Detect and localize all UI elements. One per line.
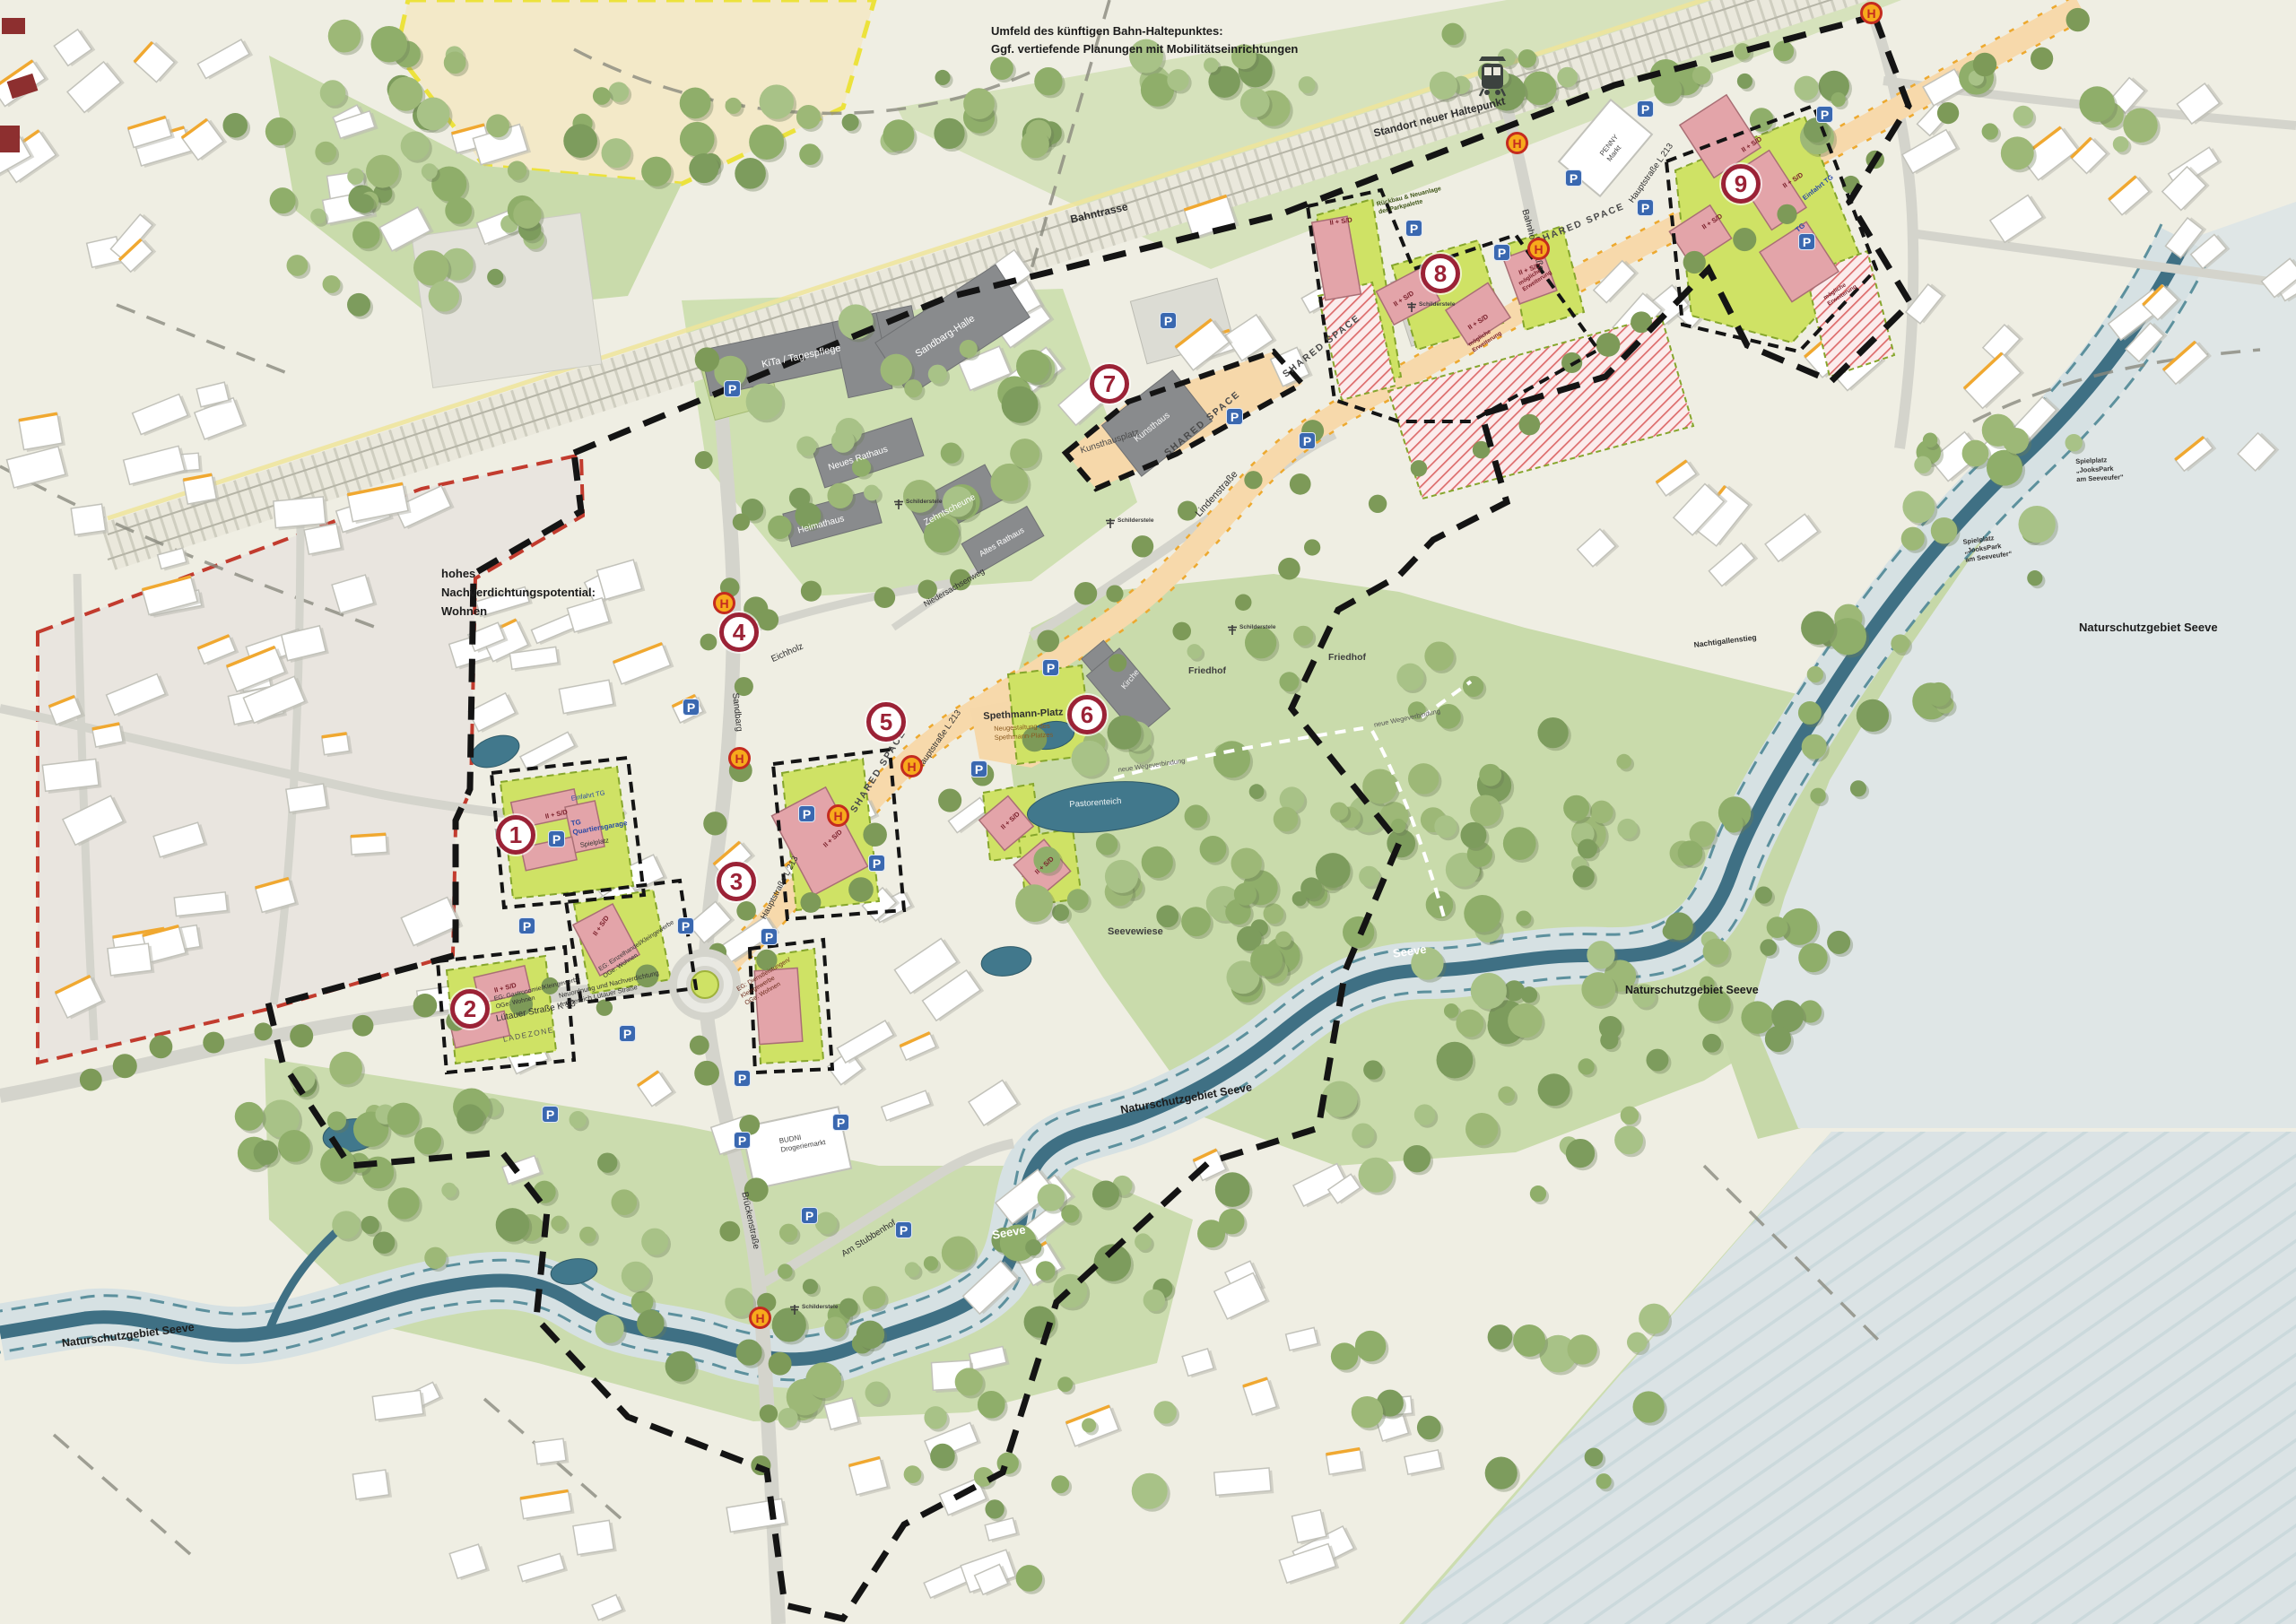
luetauer-strasse: Lütauer Straße K 53 [495, 998, 577, 1025]
storey-label: II + S/D [1033, 855, 1056, 876]
spethmann-sub: Neugestaltung des Spethmann-Platzes [994, 722, 1053, 743]
parking-icon[interactable]: P [798, 805, 815, 822]
kunsthaus: Kunsthaus [1132, 410, 1172, 445]
kita-tagespflege: KiTa / Tagespflege [761, 342, 842, 371]
wegeverbindung-1: neue Wegeverbindung [1118, 757, 1186, 775]
storey-label: II + S/D [1781, 170, 1805, 190]
parking-icon[interactable]: P [1637, 100, 1654, 117]
parking-icon[interactable]: P [1160, 312, 1177, 329]
bus-stop-icon[interactable]: H [900, 755, 923, 777]
storey-label: II + S/D [493, 981, 517, 995]
am-stubbenhof: Am Stubbenhof [839, 1217, 898, 1260]
budni: BUDNI Drogeriemarkt [778, 1129, 827, 1155]
jookspark-1: Spielplatz „JooksPark am Seeveufer“ [1962, 532, 2013, 564]
signpost-icon: Schilderstele [1227, 624, 1275, 636]
parking-icon[interactable]: P [761, 928, 778, 945]
parking-icon[interactable]: P [683, 699, 700, 716]
parking-icon[interactable]: P [1816, 106, 1833, 123]
parking-icon[interactable]: P [724, 380, 741, 397]
moegliche-erweiterung-3: mögliche Erweiterung [1822, 278, 1859, 309]
niedersachsenweg: Niedersachsenweg [922, 567, 987, 610]
einfahrt-tg-1: Einfahrt TG [570, 788, 605, 803]
storey-label: II + S/D [1466, 312, 1490, 332]
storey-label: II + S/D [591, 914, 611, 937]
parking-icon[interactable]: P [677, 917, 694, 934]
shared-space-3: SHARED SPACE [1534, 201, 1627, 248]
eg-dienstleistungen: EG: Dienstleistungen/ Kleingewerbe OGe: … [735, 956, 800, 1007]
shared-space-1: SHARED SPACE [1281, 312, 1363, 380]
parking-icon[interactable]: P [1798, 233, 1815, 250]
parking-icon[interactable]: P [801, 1207, 818, 1224]
site-marker-8[interactable]: 8 [1421, 254, 1460, 293]
nsg-seeve-4: Naturschutzgebiet Seeve [1625, 983, 1759, 997]
moegliche-erweiterung-1: mögliche Erweiterung [1518, 264, 1554, 295]
parking-icon[interactable]: P [542, 1106, 559, 1123]
masterplan-map: Umfeld des künftigen Bahn-Haltepunktes: … [0, 0, 2296, 1624]
eg-gastronomie: EG: Gastronomie/Kleingewerbe OGe: Wohnen [493, 976, 583, 1012]
site-marker-9[interactable]: 9 [1721, 164, 1761, 204]
seevewiese: Seevewiese [1108, 925, 1163, 938]
seeve-1: Seeve [991, 1222, 1027, 1243]
pastorenteich: Pastorenteich [1069, 796, 1122, 811]
nsg-seeve-3: Naturschutzgebiet Seeve [2079, 621, 2218, 636]
bahn-haltepunkt-note: Umfeld des künftigen Bahn-Haltepunktes: … [991, 22, 1298, 58]
parking-icon[interactable]: P [1405, 220, 1422, 237]
sandbarg: Sandbarg [729, 692, 744, 732]
hauptstrasse-1: Hauptstraße L 213 [759, 855, 802, 922]
nachtigallenstieg: Nachtigallenstieg [1693, 632, 1757, 650]
hauptstrasse-3: Hauptstraße L 213 [1627, 142, 1676, 205]
parking-icon[interactable]: P [895, 1221, 912, 1238]
signpost-icon: Schilderstele [1406, 301, 1455, 313]
signpost-icon: Schilderstele [1105, 517, 1153, 529]
parking-icon[interactable]: P [832, 1114, 849, 1131]
bus-stop-icon[interactable]: H [749, 1307, 771, 1329]
spethmann-platz: Spethmann-Platz [983, 706, 1064, 723]
parking-icon[interactable]: P [619, 1025, 636, 1042]
wegeverbindung-2: neue Wegeverbindung [1373, 707, 1441, 729]
standort-neuer-haltepunkt: Standort neuer Haltepunkt [1372, 95, 1507, 142]
neues-rathaus: Neues Rathaus [827, 444, 890, 474]
signpost-icon: Schilderstele [789, 1304, 838, 1316]
storey-label: II + S/D [999, 810, 1022, 831]
moegliche-erweiterung-2: mögliche Erweiterung [1467, 325, 1504, 356]
storey-label: II + S/D [1740, 135, 1763, 154]
bus-stop-icon[interactable]: H [827, 804, 849, 827]
bus-stop-icon[interactable]: H [1860, 2, 1883, 24]
einfahrt-tg-2: Einfahrt TG [1801, 173, 1835, 203]
parking-icon[interactable]: P [1637, 199, 1654, 216]
neuordnung-luetauer: Neuordnung und Nachverdichtung im Bereic… [558, 968, 662, 1009]
parking-icon[interactable]: P [868, 855, 885, 872]
parking-icon[interactable]: P [1042, 659, 1059, 676]
altes-rathaus: Altes Rathaus [978, 525, 1026, 560]
bus-stop-icon[interactable]: H [1527, 238, 1550, 260]
site-marker-1[interactable]: 1 [496, 815, 535, 855]
nsg-seeve-2: Naturschutzgebiet Seeve [1119, 1080, 1253, 1117]
tg-quartiersgarage: TG Quartiersgarage [570, 810, 628, 838]
friedhof-2: Friedhof [1328, 652, 1366, 664]
site-marker-4[interactable]: 4 [719, 612, 759, 652]
storey-label: II + S/D [1329, 215, 1352, 227]
site-marker-3[interactable]: 3 [717, 862, 756, 901]
ladezone: LADEZONE [502, 1025, 555, 1045]
sandbarg-halle: Sandbarg-Halle [913, 312, 978, 360]
parking-icon[interactable]: P [734, 1070, 751, 1087]
signpost-icon: Schilderstele [893, 499, 942, 510]
heimathaus: Heimathaus [796, 513, 846, 536]
site-marker-7[interactable]: 7 [1090, 364, 1129, 404]
storey-label: II + S/D [822, 828, 844, 849]
parking-icon[interactable]: P [548, 830, 565, 847]
site-marker-5[interactable]: 5 [866, 702, 906, 742]
storey-label: II + S/D [1700, 212, 1724, 231]
bahntrasse: Bahntrasse [1069, 200, 1129, 227]
parking-icon[interactable]: P [518, 917, 535, 934]
bus-stop-icon[interactable]: H [728, 747, 751, 769]
parking-icon[interactable]: P [1226, 408, 1243, 425]
bus-stop-icon[interactable]: H [1506, 132, 1528, 154]
rueckbau-parkpalette: Rückbau & Neuanlage der Parkpalette [1376, 185, 1444, 217]
storey-label: II + S/D [544, 808, 569, 821]
storey-label: II + S/D [1518, 261, 1542, 277]
nsg-seeve-1: Naturschutzgebiet Seeve [61, 1320, 196, 1350]
kirche: Kirche [1119, 667, 1142, 691]
nachverdichtung-note: hohes Nachverdichtungspotential: Wohnen [441, 565, 596, 621]
map-overlay: Umfeld des künftigen Bahn-Haltepunktes: … [0, 0, 2296, 1624]
lindenstrasse: Lindenstraße [1193, 468, 1241, 519]
parking-icon[interactable]: P [1299, 432, 1316, 449]
parking-icon[interactable]: P [970, 760, 987, 777]
eg-einzelhandel: EG: Einzelhandel/Kleingewerbe OGe: Wohne… [597, 918, 680, 980]
eichholz: Eichholz [770, 641, 805, 665]
jookspark-2: Spielplatz „JooksPark am Seeveufer“ [2075, 455, 2124, 483]
brueckenstrasse: Brückenstraße [738, 1191, 761, 1250]
parking-icon[interactable]: P [1493, 244, 1510, 261]
bus-stop-icon[interactable]: H [713, 592, 735, 614]
kunsthausplatz: Kunsthausplatz [1079, 427, 1141, 456]
spielplatz: Spielplatz [579, 836, 610, 849]
site-marker-2[interactable]: 2 [450, 989, 490, 1029]
site-marker-6[interactable]: 6 [1067, 695, 1107, 734]
train-icon [1476, 56, 1509, 101]
friedhof-1: Friedhof [1188, 665, 1226, 678]
penny: PENNY Markt [1598, 133, 1628, 164]
parking-icon[interactable]: P [734, 1132, 751, 1149]
parking-icon[interactable]: P [1565, 169, 1582, 187]
seeve-2: Seeve [1392, 942, 1428, 962]
shared-space-4: SHARED SPACE [848, 728, 909, 816]
